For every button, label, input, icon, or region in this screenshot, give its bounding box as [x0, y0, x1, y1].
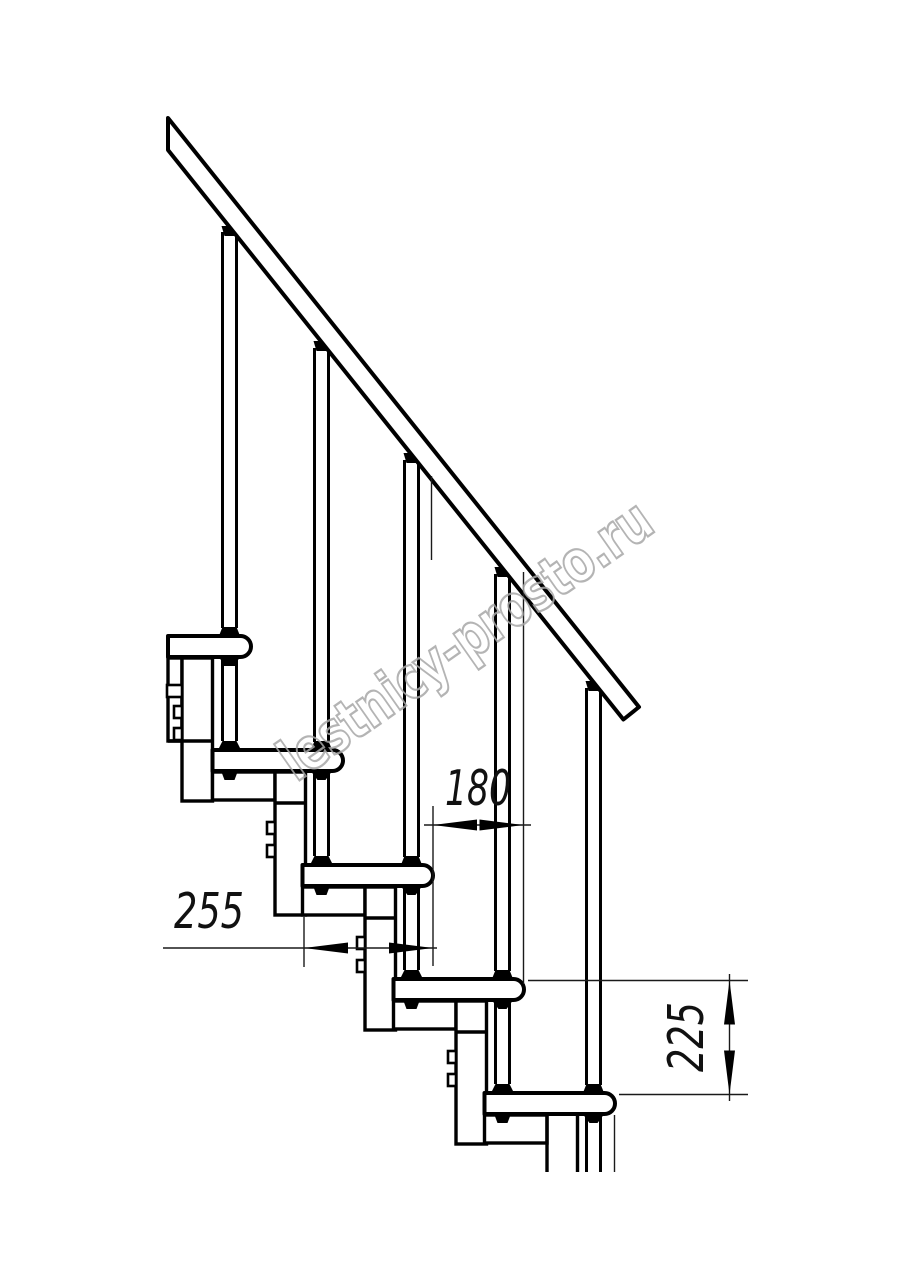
bolt-tab: [357, 937, 365, 949]
support-column-1: [167, 658, 213, 801]
connector-plate: [303, 887, 366, 915]
arrow-left-icon: [433, 820, 477, 831]
tread-3: [303, 865, 434, 886]
watermark-text: lestnicy-prosto.ru: [265, 486, 664, 794]
bolt-tab: [448, 1074, 456, 1086]
bracket-tab: [167, 685, 182, 697]
support-column-4: [394, 1001, 487, 1144]
support-tube-1: [220, 658, 240, 741]
arrow-up-icon: [724, 981, 735, 1025]
bolt-tab: [267, 822, 275, 834]
staircase-side-view-drawing: 180 255 225 lestnicy-prosto.ru: [0, 0, 914, 1280]
bolt-tab: [267, 845, 275, 857]
baluster-5: [583, 681, 605, 1094]
bolt-tab: [448, 1051, 456, 1063]
dimension-255-label: 255: [174, 883, 244, 940]
connector-plate: [213, 772, 276, 800]
bolt-tab: [174, 728, 182, 740]
connector-plate: [394, 1001, 457, 1029]
bolt-tab: [174, 706, 182, 718]
arrow-right-icon: [480, 820, 524, 831]
dimension-225-label: 225: [658, 1002, 715, 1072]
support-column-3: [303, 887, 396, 1030]
tread-4: [394, 979, 525, 1000]
dimension-180-label: 180: [445, 760, 511, 817]
support-tube-5: [584, 1115, 604, 1172]
tread-5: [485, 1093, 616, 1114]
support-column-5: [485, 1115, 615, 1172]
support-tube-4: [493, 1001, 513, 1084]
technical-drawing-page: 180 255 225 lestnicy-prosto.ru: [0, 0, 914, 1280]
arrow-left-icon: [304, 943, 348, 954]
baluster-1: [219, 226, 241, 637]
arrow-down-icon: [724, 1051, 735, 1095]
baluster-2: [311, 341, 333, 751]
dimension-225: 225: [528, 974, 748, 1101]
connector-plate: [485, 1115, 548, 1143]
support-tube-3: [402, 887, 422, 970]
bolt-tab: [357, 960, 365, 972]
tread-1: [168, 636, 251, 657]
arrow-right-icon: [389, 943, 433, 954]
bottom-crop-mask: [0, 1172, 914, 1280]
